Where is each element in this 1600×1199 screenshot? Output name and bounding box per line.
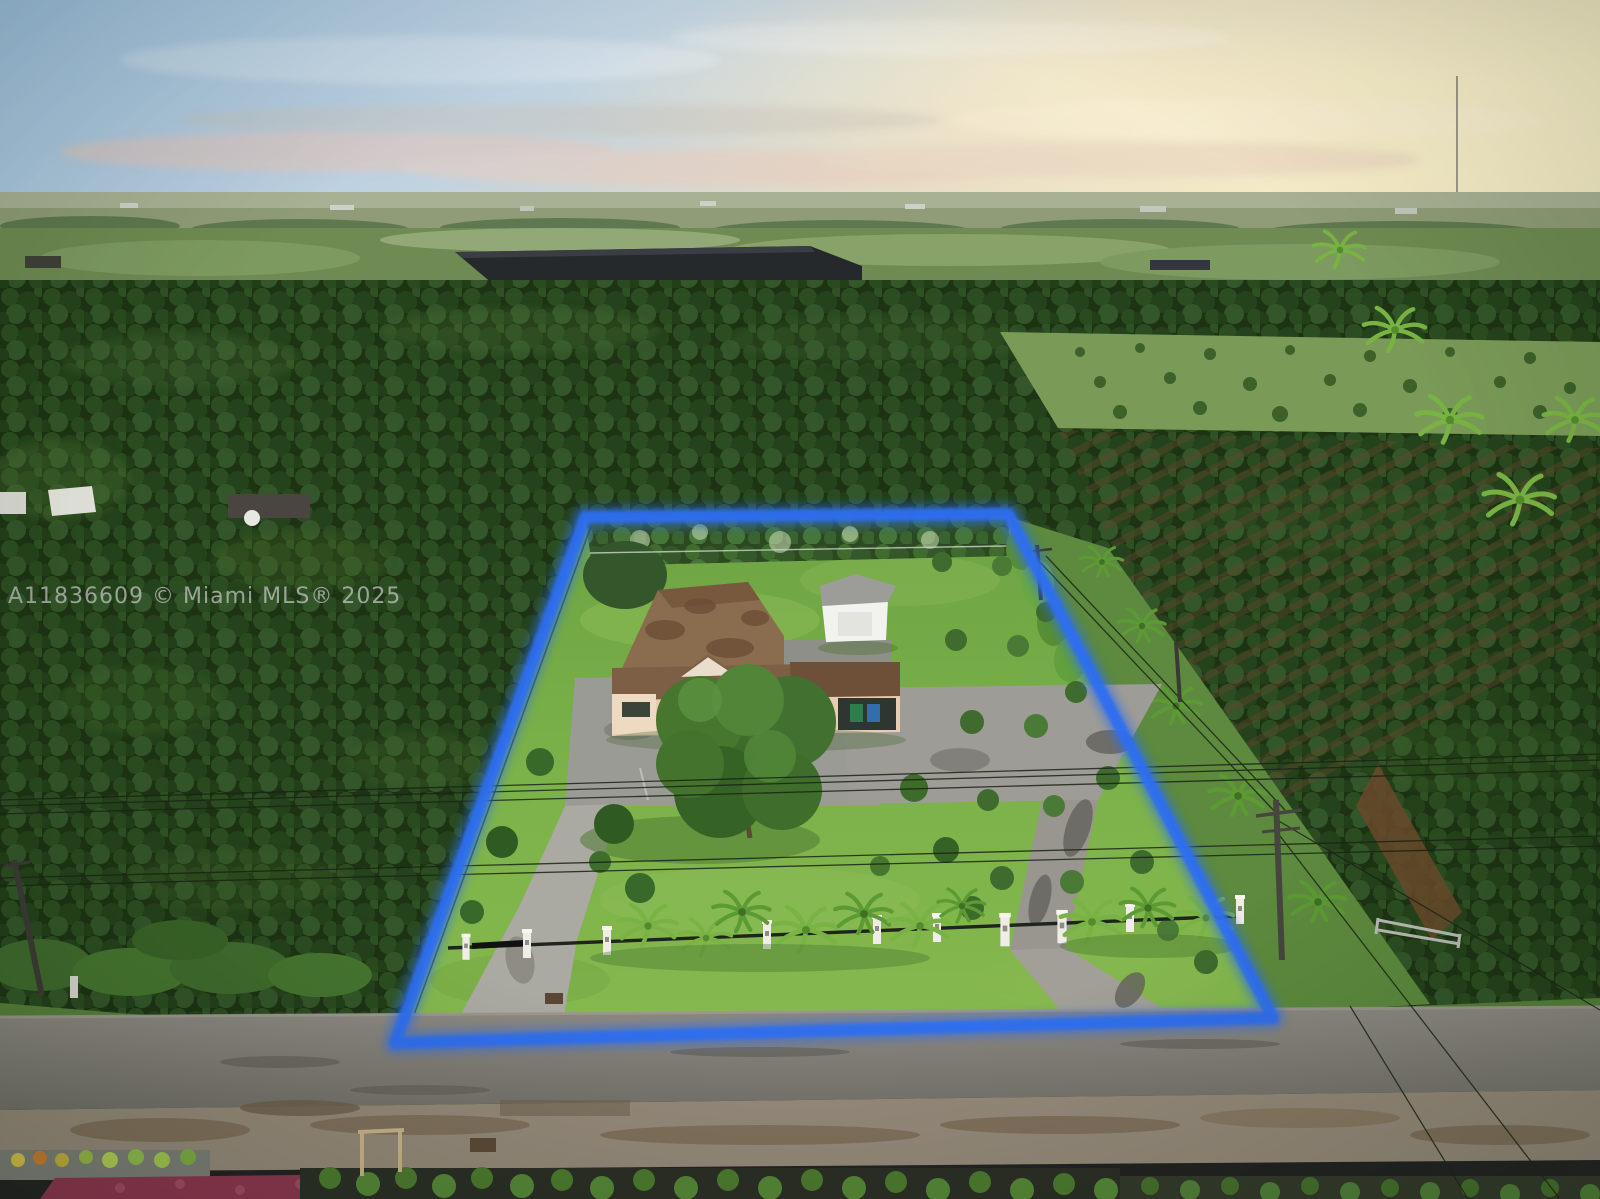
vignette: [0, 0, 1600, 1199]
aerial-photo: A11836609 © Miami MLS® 2025: [0, 0, 1600, 1199]
